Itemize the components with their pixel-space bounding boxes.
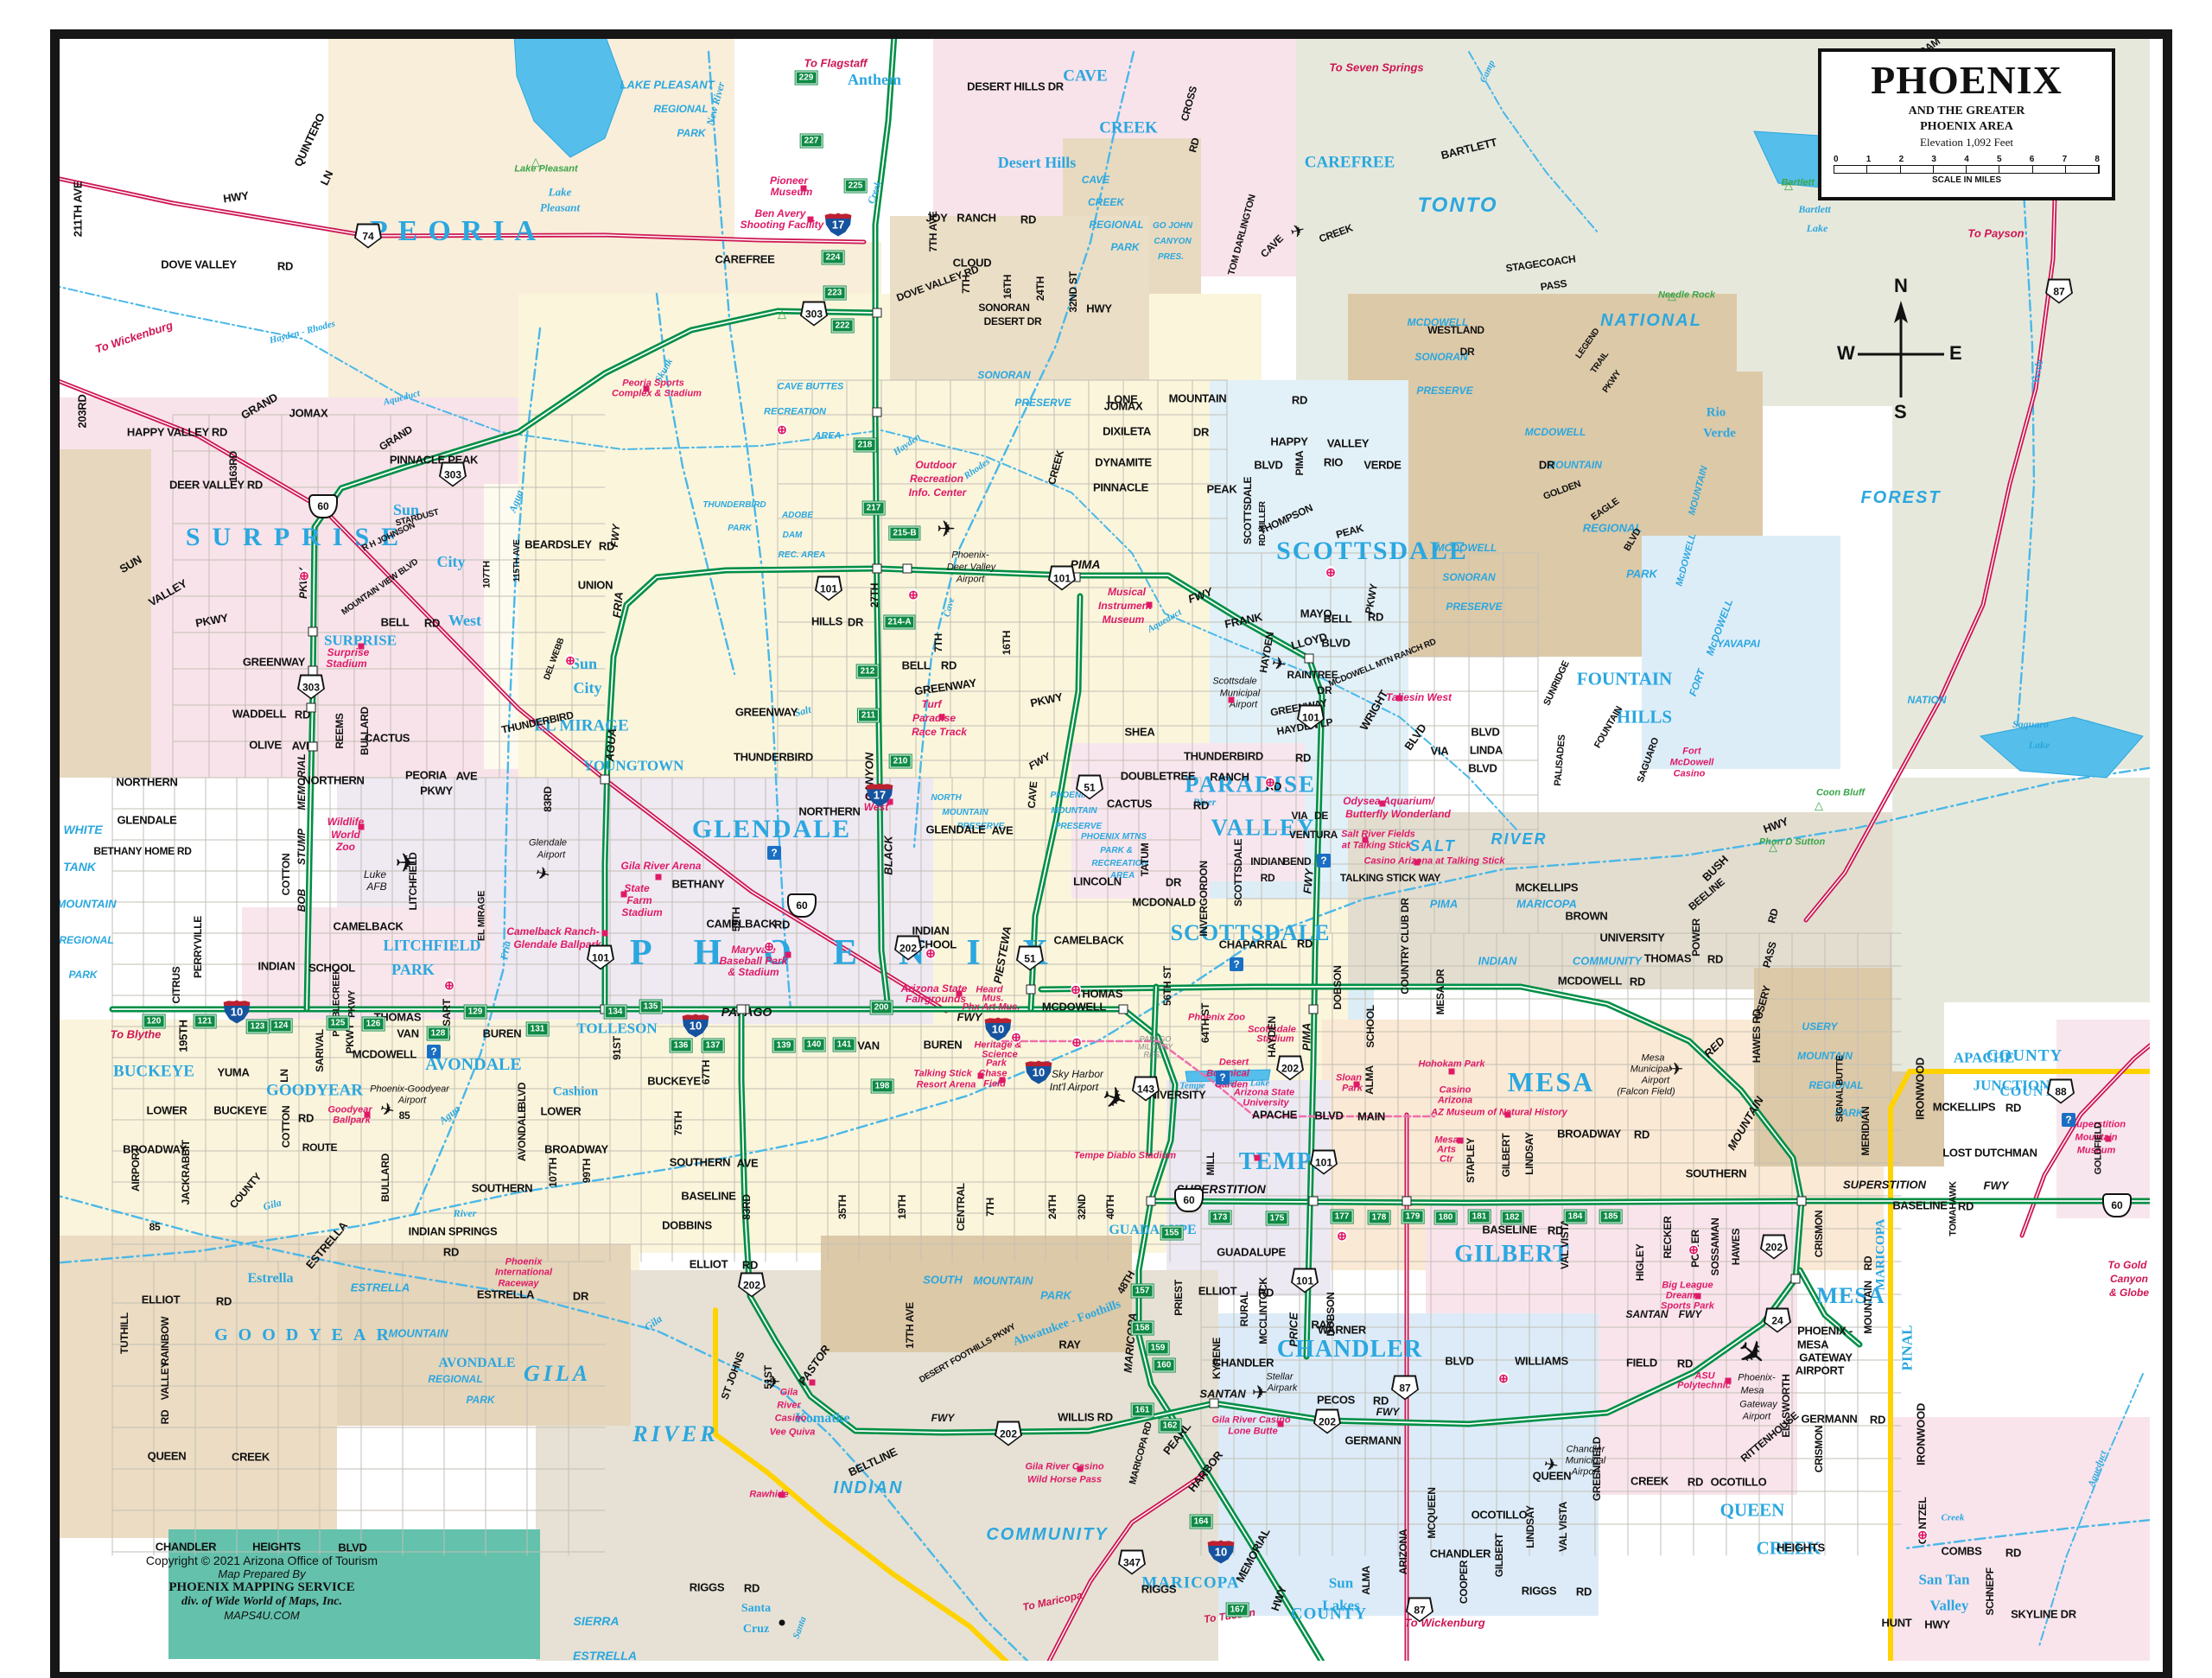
map-label: 59TH (731, 907, 741, 931)
map-label: RD (1020, 214, 1036, 226)
map-label: RD (1297, 938, 1313, 950)
map-label: QUEEN (1720, 1502, 1785, 1520)
map-label: NORTHERN (302, 775, 364, 786)
map-label: 40TH (1105, 1195, 1116, 1219)
map-label: HAWES (1731, 1229, 1741, 1266)
map-label: To Gold (2108, 1260, 2147, 1270)
map-label: River (454, 1208, 477, 1218)
map-label: Desert (1219, 1058, 1249, 1068)
map-label: BASELINE (1482, 1224, 1536, 1236)
map-label: Info. Center (909, 487, 967, 498)
map-label: RD (1707, 954, 1723, 965)
campground-icon: △ (1668, 290, 1676, 302)
map-label: DR (1539, 460, 1554, 471)
map-label: WESTLAND (1427, 325, 1484, 335)
map-label: AVE (737, 1158, 759, 1169)
phoenix-area-map: ✈✈✈✈✈✈✈✈✈✈✈✈??????⊕⊕⊕⊕⊕⊕⊕⊕⊕⊕⊕⊕⊕⊕⊕⊕△△△△△△… (0, 0, 2212, 1678)
interchange-diamond-icon (308, 666, 318, 676)
exit-marker-123: 123 (247, 1020, 269, 1033)
map-label: VAN (857, 1040, 880, 1052)
map-label: Coon Bluff (1816, 789, 1865, 798)
map-label: DR (1193, 427, 1209, 438)
state-route-101-shield: 101 (587, 945, 614, 970)
map-label: Mesa (1741, 1387, 1764, 1396)
map-label: COUNTRY CLUB DR (1400, 898, 1410, 995)
map-label: 7TH AVE (928, 211, 938, 251)
map-label: 7TH (985, 1198, 995, 1217)
map-label: 27TH (869, 583, 880, 607)
map-label: POWER (1691, 918, 1701, 957)
map-label: BUCKEYE (647, 1076, 700, 1087)
map-label: INDIAN (1478, 956, 1517, 967)
state-route-202-shield: 202 (1760, 1235, 1788, 1260)
map-label: RD (1193, 800, 1209, 811)
town-dot-icon (779, 1620, 785, 1626)
hospital-icon: ⊕ (764, 940, 774, 952)
map-label: PINAL (1900, 1325, 1915, 1371)
map-label: Musical (1108, 587, 1146, 597)
exit-marker-227: 227 (801, 135, 823, 148)
map-label: LINCOLN (1073, 876, 1122, 887)
exit-marker-178: 178 (1369, 1211, 1390, 1224)
compass-s: S (1894, 401, 1907, 423)
map-label: Canyon (2110, 1274, 2148, 1284)
map-label: HWY (1086, 303, 1111, 315)
hospital-icon: ⊕ (1337, 1230, 1347, 1242)
map-label: COMMUNITY (986, 1526, 1108, 1543)
map-label: DEER VALLEY RD (169, 480, 263, 491)
state-route-101-shield: 101 (1291, 1268, 1319, 1293)
map-label: Phoenix-Goodyear (370, 1085, 449, 1095)
scale-tick: 0 (1834, 155, 1839, 164)
map-label: SUPERSTITION (1843, 1179, 1926, 1191)
map-label: ESTRELLA (477, 1289, 534, 1300)
map-label: State (624, 883, 649, 893)
map-label: PERRYVILLE (193, 916, 203, 978)
map-label: International (495, 1268, 552, 1278)
map-label: SOSSAMAN (1710, 1218, 1720, 1276)
map-label: MOUNTAIN (56, 899, 116, 910)
map-label: SOUTHERN (472, 1183, 533, 1194)
exit-marker-134: 134 (605, 1006, 626, 1019)
map-label: SOUTHERN (1686, 1168, 1747, 1179)
map-label: 16TH (1002, 275, 1013, 299)
map-label: THUNDERBIRD (702, 501, 766, 510)
map-label: BETHANY HOME RD (93, 846, 191, 856)
airport-plane-icon: ✈ (1270, 655, 1287, 675)
map-label: PARK (466, 1395, 494, 1405)
map-label: RIO (1324, 457, 1343, 468)
hospital-icon: ⊕ (1071, 1036, 1082, 1048)
exit-marker-214-A: 214-A (884, 616, 914, 629)
compass-rose: N S E W (1840, 285, 1961, 423)
interchange-diamond-icon (1309, 1197, 1319, 1206)
map-label: LINDA (1470, 745, 1503, 756)
credits-division: div. of Wide World of Maps, Inc. (111, 1595, 413, 1609)
map-label: GOLDFIELD (2094, 1122, 2104, 1175)
landmark-square-icon (1229, 697, 1235, 703)
landmark-square-icon (1000, 1077, 1006, 1084)
landmark-square-icon (1397, 696, 1403, 702)
map-label: GATEWAY (1799, 1352, 1852, 1363)
map-label: APACHE (1252, 1109, 1297, 1121)
map-label: GILBERT (1454, 1243, 1570, 1267)
map-label: HIGLEY (1635, 1244, 1645, 1281)
exit-marker-180: 180 (1435, 1211, 1457, 1224)
landmark-square-icon (365, 1112, 371, 1118)
map-label: HUNT (1882, 1618, 1912, 1629)
landmark-square-icon (1278, 1421, 1284, 1427)
landmark-square-icon (801, 186, 807, 192)
map-label: YAVAPAI (1717, 639, 1760, 649)
map-label: ROUTE (302, 1142, 338, 1153)
exit-marker-167: 167 (1227, 1604, 1249, 1617)
map-label: RECREATION (764, 408, 826, 417)
exit-marker-159: 159 (1147, 1342, 1169, 1355)
map-label: Recreation (910, 474, 963, 484)
map-label: Gila (780, 1389, 798, 1398)
state-route-88-shield: 88 (2047, 1079, 2075, 1104)
map-label: RD (1373, 1395, 1389, 1407)
compass-w: W (1837, 342, 1855, 365)
map-label: ELLIOT (142, 1294, 180, 1306)
map-label: DOBSON (1332, 966, 1343, 1010)
map-label: CHAPARRAL (1219, 939, 1287, 950)
map-label: SCOTTSDALE (1233, 839, 1243, 906)
map-label: 107TH (483, 561, 493, 588)
map-label: 32ND (1077, 1194, 1087, 1219)
map-label: RD (277, 261, 293, 272)
map-label: Taliesin West (1386, 692, 1452, 702)
map-label: Big League (1662, 1281, 1713, 1291)
interchange-diamond-icon (1402, 1197, 1412, 1206)
map-label: BUREN (924, 1039, 963, 1051)
scale-tick: 6 (2030, 155, 2035, 164)
map-label: BUCKEYE (113, 1064, 194, 1080)
landmark-square-icon (656, 874, 662, 880)
map-label: INDIAN (1250, 856, 1285, 867)
map-label: Scottsdale (1212, 677, 1256, 687)
map-label: MESA (1797, 1339, 1828, 1351)
shield-number: 202 (1278, 1058, 1302, 1079)
state-route-24-shield: 24 (1764, 1308, 1791, 1333)
shield-number: 87 (2047, 281, 2071, 302)
map-label: Turf (921, 699, 941, 709)
exit-marker-182: 182 (1502, 1211, 1523, 1224)
map-label: RD (160, 1410, 170, 1425)
map-label: SCOTTSDALE (1243, 477, 1253, 544)
map-label: Needle Rock (1658, 291, 1715, 301)
exit-marker-198: 198 (872, 1080, 893, 1093)
map-label: Valley (1930, 1599, 1969, 1613)
map-label: Casino (1440, 1086, 1471, 1096)
map-label: PINNACLE (1093, 482, 1148, 493)
map-label: BEND (1283, 856, 1312, 867)
map-label: REEMS (334, 713, 345, 748)
map-label: WILLIAMS (1515, 1356, 1568, 1367)
map-label: PARK (728, 524, 752, 533)
map-label: MOUNTAIN (388, 1328, 448, 1339)
map-label: TUTHILL (119, 1313, 130, 1354)
map-label: Race Track (912, 727, 967, 737)
tourist-info-icon: ? (2062, 1113, 2075, 1127)
map-label: CAVE BUTTES (778, 383, 844, 392)
map-label: SCHNEPF (1985, 1567, 1995, 1615)
map-label: VAL VISTA (1560, 1219, 1570, 1269)
map-label: DIXILETA (1103, 426, 1151, 437)
map-label: 17TH AVE (905, 1302, 915, 1349)
shield-number: 202 (996, 1423, 1020, 1445)
map-label: AIRPORT (130, 1147, 141, 1192)
map-label: HILLS (811, 616, 842, 627)
map-label: DR (848, 617, 863, 628)
interchange-diamond-icon (1027, 985, 1036, 995)
map-label: ALMA (1364, 1065, 1375, 1094)
map-label: CANYON (1154, 238, 1191, 246)
map-label: HAPPY VALLEY RD (127, 427, 227, 438)
exit-marker-131: 131 (527, 1023, 549, 1036)
hospital-icon: ⊕ (444, 979, 454, 991)
map-label: PRES. (1158, 253, 1184, 262)
airport-plane-icon: ✈ (766, 1374, 781, 1391)
map-label: FOUNTAIN (1577, 671, 1672, 689)
landmark-square-icon (1414, 860, 1421, 866)
map-label: 32ND ST (1068, 271, 1078, 312)
map-label: FIELD (1626, 1357, 1657, 1369)
map-label: JOMAX (289, 408, 328, 419)
hospital-icon: ⊕ (1071, 983, 1081, 995)
map-label: GOODYEAR (266, 1083, 363, 1099)
map-label: CAMELBACK (1053, 935, 1123, 946)
map-subtitle-1: AND THE GREATER (1821, 105, 2112, 118)
map-label: BLVD (517, 1083, 527, 1109)
map-label: MOUNTAIN (973, 1275, 1033, 1287)
map-label: Int'l Airport (1050, 1082, 1099, 1092)
map-label: PARK (677, 128, 705, 138)
map-label: LINDSAY (1525, 1505, 1535, 1548)
map-label: HILLS (1617, 709, 1672, 727)
map-label: STUMP (296, 829, 307, 865)
landmark-square-icon (359, 644, 365, 650)
exit-marker-229: 229 (796, 72, 817, 85)
map-label: COTTON (281, 854, 291, 896)
exit-marker-217: 217 (863, 502, 885, 515)
map-label: FWY (1984, 1180, 2009, 1192)
map-label: Salt River Fields (1341, 830, 1415, 840)
map-label: RD (443, 1247, 459, 1258)
map-label: Lake Pleasant (514, 165, 577, 175)
map-label: MCKELLIPS (1516, 882, 1578, 893)
exit-marker-128: 128 (428, 1027, 449, 1040)
map-label: Tempe Diablo Stadium (1074, 1152, 1176, 1161)
interchange-diamond-icon (873, 564, 882, 574)
map-label: PRESERVE (1416, 385, 1472, 396)
map-label: RIGGS (690, 1582, 724, 1593)
map-label: OLIVE (249, 740, 282, 751)
map-label: Resort Arena (917, 1081, 976, 1090)
map-label: Airport (957, 575, 984, 585)
map-label: DYNAMITE (1095, 457, 1152, 468)
map-label: SIERRA (574, 1615, 620, 1627)
map-label: 91ST (612, 1036, 622, 1059)
map-label: EL MIRAGE (478, 891, 487, 941)
map-label: GUADALUPE (1109, 1224, 1196, 1237)
map-label: UNIVERSITY (1599, 932, 1664, 944)
map-label: HAYDEN (1267, 1016, 1277, 1058)
map-label: CAREFREE (1305, 155, 1395, 171)
map-label: Zoo (336, 842, 355, 852)
map-label: AIRPORT (1796, 1365, 1844, 1376)
scale-tick: 7 (2063, 155, 2068, 164)
map-label: To Seven Springs (1329, 62, 1423, 73)
map-label: 24TH (1047, 1195, 1058, 1219)
map-label: NORTHERN (798, 806, 860, 817)
map-label: BLVD (1468, 763, 1497, 774)
exit-marker-161: 161 (1132, 1404, 1154, 1417)
map-label: SANTAN (1199, 1389, 1245, 1400)
map-label: COUNTY (1986, 1048, 2063, 1065)
map-label: THOMAS (1644, 953, 1692, 964)
landmark-square-icon (602, 931, 608, 937)
interchange-diamond-icon (873, 408, 882, 417)
map-label: GILA (524, 1363, 591, 1385)
map-label: GERMANN (1801, 1414, 1857, 1425)
scale-tick: 3 (1931, 155, 1936, 164)
map-label: YOUNGTOWN (583, 759, 684, 773)
map-label: Talking Stick (913, 1070, 971, 1079)
map-label: Stadium (621, 907, 662, 918)
map-label: Casino (775, 1414, 807, 1424)
map-label: RD (1863, 1256, 1873, 1271)
map-label: CREEK (1099, 120, 1158, 137)
map-label: Butterfly Wonderland (1345, 809, 1451, 819)
map-label: Lone Butte (1228, 1427, 1277, 1437)
map-label: RD (216, 1296, 232, 1307)
map-subtitle-2: PHOENIX AREA (1821, 120, 2112, 134)
map-label: AFB (366, 881, 386, 892)
map-label: Gila River Casino (1025, 1463, 1103, 1472)
map-label: CREEK (1088, 197, 1124, 207)
landmark-square-icon (1449, 1069, 1455, 1075)
map-label: CREEK (232, 1452, 270, 1463)
map-label: PIMA (1301, 1023, 1313, 1052)
map-label: CLOUD (953, 257, 992, 269)
map-label: HWY (1924, 1619, 1949, 1630)
exit-marker-162: 162 (1160, 1420, 1181, 1433)
exit-marker-137: 137 (702, 1039, 724, 1052)
hospital-icon: ⊕ (925, 947, 936, 959)
map-label: FWY (931, 1413, 955, 1423)
map-label: Municipal (1630, 1065, 1670, 1075)
interchange-diamond-icon (1791, 1274, 1801, 1284)
exit-marker-177: 177 (1332, 1211, 1353, 1224)
map-label: PEORIA (370, 217, 546, 246)
landmark-square-icon (1255, 1155, 1261, 1161)
map-label: DR (1166, 877, 1181, 888)
map-label: BLVD (1471, 727, 1499, 738)
exit-marker-135: 135 (640, 1001, 662, 1014)
map-label: CACTUS (365, 733, 410, 744)
map-label: San Tan (1918, 1573, 1969, 1587)
map-label: SONORAN (978, 302, 1029, 313)
map-label: CITRUS (171, 967, 181, 1004)
exit-marker-181: 181 (1469, 1211, 1491, 1224)
map-label: & Stadium (728, 967, 779, 977)
map-label: 99TH (582, 1159, 592, 1183)
map-label: To Payson (1967, 228, 2024, 239)
map-label: Pioneer (770, 175, 808, 186)
map-label: BELL (902, 660, 931, 671)
map-label: MOUNTAIN (1051, 807, 1096, 816)
map-elevation: Elevation 1,092 Feet (1821, 136, 2112, 149)
map-label: AVONDALE (425, 1056, 521, 1073)
map-label: BASELINE (681, 1191, 735, 1202)
map-label: Lake (2029, 740, 2050, 750)
landmark-square-icon (359, 824, 365, 830)
scale-tick: 8 (2094, 155, 2100, 164)
map-label: RAY (1058, 1339, 1080, 1351)
map-label: HWY (223, 190, 250, 205)
map-label: DR (573, 1291, 588, 1302)
map-label: CREEK (1630, 1476, 1669, 1487)
exit-marker-211: 211 (858, 709, 879, 722)
map-label: Sky Harbor (1052, 1069, 1103, 1079)
map-label: GUADALUPE (1217, 1247, 1286, 1258)
shield-number: 101 (1050, 568, 1074, 589)
exit-marker-225: 225 (845, 180, 867, 193)
map-label: MOUNTAIN (1169, 393, 1227, 404)
map-label: MCDOWELL (353, 1049, 416, 1060)
landmark-square-icon (1505, 1112, 1511, 1118)
map-label: CAVE (1027, 781, 1039, 809)
map-label: TOLLESON (576, 1021, 657, 1036)
map-label: 85 (149, 1222, 161, 1232)
scale-bar: 012345678 SCALE IN MILES (1834, 155, 2100, 185)
map-label: RD (2005, 1103, 2021, 1114)
map-label: PRICE (1288, 1313, 1300, 1347)
airport-plane-icon: ✈ (937, 518, 956, 540)
exit-marker-158: 158 (1132, 1322, 1154, 1335)
interchange-diamond-icon (1147, 1197, 1156, 1206)
map-label: MCDOWELL (1525, 427, 1586, 437)
map-label: HEIGHTS (252, 1541, 301, 1553)
map-label: 211TH AVE (73, 181, 84, 238)
campground-icon: △ (778, 308, 786, 320)
map-label: Casino (1674, 770, 1706, 779)
map-label: BROWN (1565, 911, 1607, 922)
shield-number: 101 (588, 947, 613, 969)
map-label: RIGGS (1522, 1586, 1556, 1597)
landmark-square-icon (621, 892, 627, 898)
exit-marker-140: 140 (804, 1039, 825, 1052)
map-label: Complex & Stadium (612, 390, 702, 399)
campground-icon: △ (1815, 800, 1823, 811)
map-label: 64TH ST (1200, 1003, 1211, 1043)
map-label: Wild Horse Pass (1027, 1476, 1102, 1485)
map-label: DOBBINS (662, 1220, 712, 1231)
state-route-87-shield: 87 (2045, 279, 2073, 304)
map-label: LAKE PLEASANT (620, 79, 714, 91)
map-label: Stellar (1266, 1373, 1293, 1382)
map-label: (Falcon Field) (1617, 1088, 1675, 1097)
landmark-square-icon (779, 1492, 785, 1498)
map-label: BUCKEYE (213, 1105, 266, 1116)
map-label: SALT (1409, 838, 1456, 854)
exit-marker-121: 121 (194, 1015, 216, 1028)
map-label: Phoenix- (1738, 1374, 1775, 1383)
map-label: SCHOOL (1365, 1005, 1376, 1048)
map-label: GILBERT (1501, 1134, 1511, 1178)
